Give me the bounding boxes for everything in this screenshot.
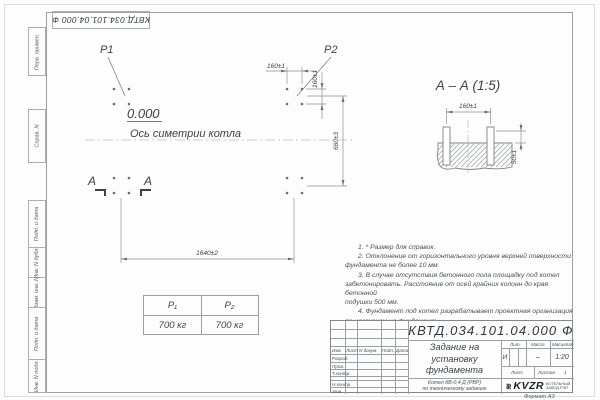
tb-lit-label: Лит. — [510, 342, 521, 347]
elevation-mark: 0.000 — [127, 106, 160, 121]
tb-scale-value: 1:20 — [550, 348, 574, 366]
tb-col-list: Лист — [346, 348, 358, 353]
tb-line — [518, 348, 519, 366]
tb-title-line: установку — [431, 354, 477, 366]
dim-660-lines — [307, 96, 347, 186]
note-line: 4. Фундамент под котел разрабатывает про… — [345, 307, 577, 316]
load-table-header-p2: P₂ — [201, 296, 258, 315]
kvzr-logo-text: KVZR — [513, 380, 544, 392]
tb-subject: Котел КВ-0,4 Д (РВР) по техническому зад… — [408, 378, 501, 394]
technical-notes: 1. * Размер для справок. 2. Отклонение о… — [345, 243, 577, 326]
tb-row-tkontr: Т.контр. — [332, 371, 351, 376]
tb-line — [509, 348, 510, 366]
kvzr-caption-line: ЗАВОД РЭП — [546, 386, 570, 390]
tb-mass-label: Масса — [531, 342, 545, 347]
title-block: Изм. Лист N докум. Подп. Дата Разраб. Пр… — [330, 320, 573, 393]
tb-line — [395, 321, 396, 394]
load-table: P₁ P₂ 700 кг 700 кг — [143, 295, 259, 335]
note-line: фундамента не более 10 мм. — [345, 261, 577, 270]
load-point-p1-label: P1 — [100, 44, 113, 56]
note-line: подушки 500 мм. — [345, 298, 577, 307]
tb-line — [381, 321, 382, 394]
tb-line — [331, 346, 408, 347]
tb-sheets-value: 1 — [564, 370, 567, 375]
tb-scale-label: Масштаб — [552, 342, 573, 347]
tb-line — [331, 376, 408, 377]
tb-logo: ≋ KVZR КОТЕЛЬНЫЙ ЗАВОД РЭП — [501, 378, 574, 394]
tb-doc-number: КВТД.034.101.04.000 Ф — [408, 321, 574, 340]
tb-line — [357, 321, 358, 394]
anchor-bolt-dots — [113, 88, 304, 195]
tb-line — [331, 387, 408, 388]
drawing-sheet: Перв. примен. Справ. N Подп. и дата Инв.… — [0, 0, 600, 400]
note-line: 1. * Размер для справок. — [345, 243, 577, 252]
tb-line — [501, 366, 574, 367]
load-point-p2-label: P2 — [324, 44, 337, 56]
load-table-value-p2: 700 кг — [201, 316, 258, 335]
dim-660-value: 660±3 — [333, 132, 340, 150]
tb-lit-value: И — [501, 348, 509, 366]
load-table-header-p1: P₁ — [144, 296, 201, 315]
tb-col-data: Дата — [396, 348, 408, 353]
section-dim-160-value: 160±1 — [459, 103, 477, 110]
dim-1640-value: 1640±2 — [196, 250, 218, 257]
dim-160h-value: 160±1 — [267, 63, 285, 70]
tb-title-line: фундамента — [426, 365, 483, 377]
section-dim-50-value: 50±1 — [511, 149, 518, 164]
tb-col-izm: Изм. — [332, 348, 342, 353]
tb-sheets-label: Листов — [538, 370, 555, 375]
tb-row-razrab: Разраб. — [332, 356, 349, 361]
load-point-leaders — [108, 57, 331, 96]
tb-title-line: Задание на — [430, 342, 480, 354]
tb-sheet-label: Лист — [511, 370, 523, 375]
section-cut-marks — [95, 190, 151, 196]
tb-col-podp: Подп. — [382, 348, 394, 353]
tb-row-prov: Пров. — [332, 364, 344, 369]
note-line: забетонировать. Расстояние от осей крайн… — [345, 280, 577, 298]
tb-title: Задание на установку фундамента — [408, 341, 501, 378]
section-marker-letter-right: А — [143, 174, 152, 188]
axis-of-symmetry-label: Ось симетрии котла — [130, 128, 241, 140]
tb-line — [534, 366, 535, 378]
tb-line — [331, 338, 408, 339]
section-dim-160-lines — [447, 108, 491, 124]
section-view-title: А – А (1:5) — [435, 78, 501, 93]
tb-line — [331, 329, 408, 330]
tb-col-ndokum: N докум. — [359, 348, 378, 353]
tb-line — [331, 354, 408, 355]
section-marker-letter-left: А — [87, 174, 96, 188]
kvzr-logo-caption: КОТЕЛЬНЫЙ ЗАВОД РЭП — [546, 382, 570, 391]
note-line: 2. Отклонение от горизонтального уровня … — [345, 252, 577, 261]
note-line: 3. В случае отсутствия бетонного пола пл… — [345, 271, 577, 280]
tb-mass-value: – — [526, 348, 550, 366]
load-table-value-p1: 700 кг — [144, 316, 201, 335]
tb-subject-line: по техническому заданию — [422, 386, 486, 392]
format-note: Формат А3 — [524, 394, 555, 400]
tb-row-nkontr: Н.контр. — [332, 382, 351, 387]
kvzr-coil-icon: ≋ — [504, 383, 513, 390]
dim-160v-value: 160±1 — [312, 70, 319, 88]
tb-row-utv: Утв. — [332, 389, 342, 394]
